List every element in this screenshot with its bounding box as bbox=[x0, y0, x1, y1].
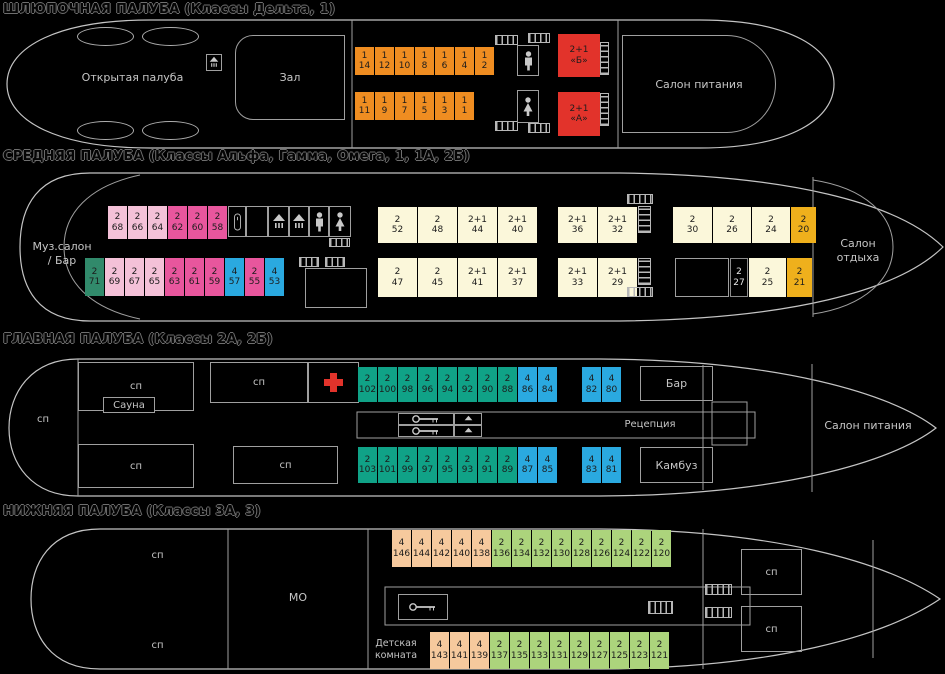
cabin-44[interactable]: 2+144 bbox=[458, 207, 497, 243]
cabin-141[interactable]: 4141 bbox=[450, 632, 469, 669]
key-icon bbox=[398, 413, 454, 425]
cabin-36[interactable]: 2+136 bbox=[558, 207, 597, 243]
cabin-99[interactable]: 299 bbox=[398, 447, 417, 483]
cabin-97[interactable]: 297 bbox=[418, 447, 437, 483]
cabin-capacity: 2 bbox=[135, 212, 141, 222]
cabin-37[interactable]: 2+137 bbox=[498, 258, 537, 297]
utility-cell bbox=[246, 206, 268, 237]
cabin-48[interactable]: 248 bbox=[418, 207, 457, 243]
cabin-64[interactable]: 264 bbox=[148, 206, 167, 239]
cabin-«А»[interactable]: 2+1«А» bbox=[558, 92, 600, 136]
middle-deck-cabin-row-bottom-right: 227225221 bbox=[730, 258, 812, 297]
cabin-number: 71 bbox=[89, 277, 100, 287]
stairs-icon bbox=[705, 607, 732, 618]
cabin-capacity: 2 bbox=[445, 455, 451, 465]
cabin-number: 84 bbox=[542, 385, 553, 395]
cabin-67[interactable]: 267 bbox=[125, 258, 144, 296]
cabin-100[interactable]: 2100 bbox=[378, 367, 397, 402]
cabin-capacity: 2 bbox=[365, 374, 371, 384]
cabin-number: 134 bbox=[513, 549, 530, 559]
cabin-144[interactable]: 4144 bbox=[412, 530, 431, 567]
cabin-53[interactable]: 453 bbox=[265, 258, 284, 296]
sauna-room: Сауна bbox=[103, 397, 155, 413]
cabin-136[interactable]: 2136 bbox=[492, 530, 511, 567]
cabin-140[interactable]: 4140 bbox=[452, 530, 471, 567]
cabin-number: 122 bbox=[633, 549, 650, 559]
cabin-62[interactable]: 262 bbox=[168, 206, 187, 239]
cabin-number: 86 bbox=[522, 385, 533, 395]
wc-men-icon bbox=[309, 206, 329, 237]
cabin-capacity: 2 bbox=[557, 640, 563, 650]
service-room bbox=[305, 268, 367, 308]
cabin-137[interactable]: 2137 bbox=[490, 632, 509, 669]
cabin-139[interactable]: 4139 bbox=[470, 632, 489, 669]
cabin-11[interactable]: 111 bbox=[355, 92, 374, 120]
cabin-capacity: 2 bbox=[617, 640, 623, 650]
cabin-capacity: 2+1 bbox=[508, 267, 527, 277]
cabin-capacity: 2+1 bbox=[468, 215, 487, 225]
cabin-number: 33 bbox=[572, 278, 583, 288]
cabin-128[interactable]: 2128 bbox=[572, 530, 591, 567]
cabin-capacity: 2 bbox=[765, 267, 771, 277]
cabin-52[interactable]: 252 bbox=[378, 207, 417, 243]
dining-label: Салон питания bbox=[655, 78, 742, 91]
cabin-capacity: 2 bbox=[497, 640, 503, 650]
stairs-icon bbox=[627, 287, 653, 297]
cabin-number: 29 bbox=[612, 278, 623, 288]
cabin-capacity: 2+1 bbox=[608, 215, 627, 225]
cabin-87[interactable]: 487 bbox=[518, 447, 537, 483]
cabin-number: 27 bbox=[733, 278, 744, 288]
cabin-capacity: 2 bbox=[172, 267, 178, 277]
suite-a-row: 2+1«А» bbox=[558, 92, 600, 136]
cabin-capacity: 2 bbox=[519, 538, 525, 548]
cabin-capacity: 2 bbox=[152, 267, 158, 277]
cabin-number: 91 bbox=[482, 465, 493, 475]
cabin-capacity: 2 bbox=[637, 640, 643, 650]
cabin-84[interactable]: 484 bbox=[538, 367, 557, 402]
cabin-number: 59 bbox=[209, 277, 220, 287]
cabin-120[interactable]: 2120 bbox=[652, 530, 671, 567]
cabin-capacity: 2 bbox=[192, 267, 198, 277]
cabin-68[interactable]: 268 bbox=[108, 206, 127, 239]
cabin-121[interactable]: 2121 bbox=[650, 632, 669, 669]
cabin-83[interactable]: 483 bbox=[582, 447, 601, 483]
middle-deck-cabin-row-top-mid1: 2522482+1442+140 bbox=[378, 207, 537, 243]
crew-label: сп bbox=[28, 414, 58, 427]
crew-room: сп bbox=[87, 621, 228, 669]
cabin-number: 87 bbox=[522, 465, 533, 475]
cabin-47[interactable]: 247 bbox=[378, 258, 417, 297]
cabin-number: 82 bbox=[586, 385, 597, 395]
cabin-21[interactable]: 221 bbox=[787, 258, 812, 297]
cabin-101[interactable]: 2101 bbox=[378, 447, 397, 483]
cabin-102[interactable]: 2102 bbox=[358, 367, 377, 402]
cabin-12[interactable]: 112 bbox=[375, 47, 394, 75]
cabin-number: 127 bbox=[591, 651, 608, 661]
rest-salon-label: Салон отдыха bbox=[818, 237, 898, 265]
cabin-124[interactable]: 2124 bbox=[612, 530, 631, 567]
cabin-133[interactable]: 2133 bbox=[530, 632, 549, 669]
cabin-138[interactable]: 4138 bbox=[472, 530, 491, 567]
crew-room: сп bbox=[87, 531, 228, 580]
cabin-58[interactable]: 258 bbox=[208, 206, 227, 239]
cabin-95[interactable]: 295 bbox=[438, 447, 457, 483]
cabin-number: 8 bbox=[422, 61, 428, 71]
stairs-icon bbox=[299, 257, 319, 267]
cabin-129[interactable]: 2129 bbox=[570, 632, 589, 669]
cabin-126[interactable]: 2126 bbox=[592, 530, 611, 567]
cabin-80[interactable]: 480 bbox=[602, 367, 621, 402]
cabin-capacity: 4 bbox=[545, 455, 551, 465]
cabin-capacity: 1 bbox=[442, 51, 448, 61]
dining-room: Салон питания bbox=[622, 35, 776, 133]
cabin-capacity: 2 bbox=[599, 538, 605, 548]
cabin-number: 2 bbox=[482, 61, 488, 71]
cabin-number: 37 bbox=[512, 278, 523, 288]
cabin-capacity: 2 bbox=[499, 538, 505, 548]
cabin-capacity: 2 bbox=[425, 455, 431, 465]
cabin-capacity: 2 bbox=[539, 538, 545, 548]
bar-room: Бар bbox=[640, 366, 713, 401]
cabin-capacity: 4 bbox=[589, 455, 595, 465]
cabin-number: 66 bbox=[132, 223, 143, 233]
lifeboat-icon bbox=[142, 121, 199, 140]
reception-label: Рецепция bbox=[612, 419, 688, 432]
cabin-capacity: 2 bbox=[395, 215, 401, 225]
cabin-number: 98 bbox=[402, 385, 413, 395]
engine-room-label: МО bbox=[280, 591, 316, 605]
cabin-number: 99 bbox=[402, 465, 413, 475]
cabin-capacity: 2 bbox=[215, 212, 221, 222]
cabin-capacity: 2 bbox=[132, 267, 138, 277]
cabin-number: 92 bbox=[462, 385, 473, 395]
cabin-85[interactable]: 485 bbox=[538, 447, 557, 483]
cabin-capacity: 2 bbox=[92, 267, 98, 277]
cabin-86[interactable]: 486 bbox=[518, 367, 537, 402]
cabin-7[interactable]: 17 bbox=[395, 92, 414, 120]
cabin-number: 121 bbox=[651, 651, 668, 661]
cabin-capacity: 2 bbox=[485, 374, 491, 384]
cabin-1[interactable]: 11 bbox=[455, 92, 474, 120]
cabin-number: 139 bbox=[471, 651, 488, 661]
cabin-capacity: 2 bbox=[405, 374, 411, 384]
cabin-capacity: 2 bbox=[195, 212, 201, 222]
cabin-number: 130 bbox=[553, 549, 570, 559]
cabin-66[interactable]: 266 bbox=[128, 206, 147, 239]
cabin-capacity: 2 bbox=[505, 374, 511, 384]
cabin-96[interactable]: 296 bbox=[418, 367, 437, 402]
cabin-number: 64 bbox=[152, 223, 163, 233]
cabin-number: 10 bbox=[399, 61, 410, 71]
cabin-capacity: 2 bbox=[175, 212, 181, 222]
cabin-capacity: 2 bbox=[425, 374, 431, 384]
main-deck-cabin-row-bottom2: 483481 bbox=[582, 447, 621, 483]
cabin-55[interactable]: 255 bbox=[245, 258, 264, 296]
cabin-capacity: 4 bbox=[459, 538, 465, 548]
cabin-69[interactable]: 269 bbox=[105, 258, 124, 296]
middle-deck-cabin-row-top-mid2: 2+1362+132 bbox=[558, 207, 637, 243]
cabin-capacity: 2 bbox=[797, 267, 803, 277]
stairs-icon bbox=[528, 33, 550, 43]
medical-room bbox=[308, 362, 359, 403]
cabin-capacity: 2 bbox=[435, 215, 441, 225]
cabin-91[interactable]: 291 bbox=[478, 447, 497, 483]
cabin-71[interactable]: 271 bbox=[85, 258, 104, 296]
cabin-number: 4 bbox=[462, 61, 468, 71]
cabin-number: 52 bbox=[392, 225, 403, 235]
stairs-icon bbox=[325, 257, 345, 267]
cabin-24[interactable]: 224 bbox=[752, 207, 790, 243]
cabin-4[interactable]: 14 bbox=[455, 47, 474, 75]
cabin-27[interactable]: 227 bbox=[730, 258, 748, 297]
cabin-number: 93 bbox=[462, 465, 473, 475]
cabin-capacity: 2 bbox=[365, 455, 371, 465]
cabin-number: 57 bbox=[229, 277, 240, 287]
cabin-capacity: 2 bbox=[597, 640, 603, 650]
cabin-10[interactable]: 110 bbox=[395, 47, 414, 75]
cabin-number: 3 bbox=[442, 106, 448, 116]
cabin-number: 88 bbox=[502, 385, 513, 395]
lifeboat-icon bbox=[77, 27, 134, 46]
cabin-capacity: 1 bbox=[442, 96, 448, 106]
main-deck-title: ГЛАВНАЯ ПАЛУБА (Классы 2А, 2Б) bbox=[3, 332, 273, 347]
cabin-number: 136 bbox=[493, 549, 510, 559]
cabin-capacity: 4 bbox=[399, 538, 405, 548]
cabin-capacity: 4 bbox=[419, 538, 425, 548]
cabin-number: 9 bbox=[382, 106, 388, 116]
cabin-capacity: 2 bbox=[252, 267, 258, 277]
cabin-57[interactable]: 457 bbox=[225, 258, 244, 296]
cabin-number: 94 bbox=[442, 385, 453, 395]
cabin-143[interactable]: 4143 bbox=[430, 632, 449, 669]
cabin-capacity: 2 bbox=[395, 267, 401, 277]
cabin-number: 135 bbox=[511, 651, 528, 661]
cabin-26[interactable]: 226 bbox=[713, 207, 751, 243]
galley-room: Камбуз bbox=[640, 447, 713, 483]
cabin-number: 62 bbox=[172, 223, 183, 233]
cabin-125[interactable]: 2125 bbox=[610, 632, 629, 669]
cabin-capacity: 1 bbox=[362, 96, 368, 106]
cabin-number: 143 bbox=[431, 651, 448, 661]
crew-room: сп bbox=[78, 444, 194, 488]
cabin-93[interactable]: 293 bbox=[458, 447, 477, 483]
cabin-capacity: 1 bbox=[382, 51, 388, 61]
cabin-number: 5 bbox=[422, 106, 428, 116]
cabin-number: 40 bbox=[512, 225, 523, 235]
cabin-5[interactable]: 15 bbox=[415, 92, 434, 120]
cabin-number: 63 bbox=[169, 277, 180, 287]
cabin-capacity: 2+1 bbox=[468, 267, 487, 277]
cabin-capacity: 1 bbox=[422, 96, 428, 106]
cabin-41[interactable]: 2+141 bbox=[458, 258, 497, 297]
middle-deck-cabin-row-bottom-mid2: 2+1332+129 bbox=[558, 258, 637, 297]
ship-deck-plan: ШЛЮПОЧНАЯ ПАЛУБА (Классы Дельта, 1) Откр… bbox=[0, 0, 945, 674]
cabin-8[interactable]: 18 bbox=[415, 47, 434, 75]
cabin-59[interactable]: 259 bbox=[205, 258, 224, 296]
cabin-number: 141 bbox=[451, 651, 468, 661]
cabin-14[interactable]: 114 bbox=[355, 47, 374, 75]
open-deck-label: Открытая палуба bbox=[65, 71, 200, 85]
middle-deck-cabin-row-bottom-left: 271269267265263261259457255453 bbox=[85, 258, 284, 296]
boat-deck-cabin-row-bottom: 1111917151311 bbox=[355, 92, 474, 120]
cabin-number: 120 bbox=[653, 549, 670, 559]
dining-label: Салон питания bbox=[816, 419, 920, 433]
crew-room: сп bbox=[741, 606, 802, 652]
cabin-123[interactable]: 2123 bbox=[630, 632, 649, 669]
cabin-82[interactable]: 482 bbox=[582, 367, 601, 402]
cabin-98[interactable]: 298 bbox=[398, 367, 417, 402]
cabin-45[interactable]: 245 bbox=[418, 258, 457, 297]
cabin-142[interactable]: 4142 bbox=[432, 530, 451, 567]
cabin-90[interactable]: 290 bbox=[478, 367, 497, 402]
cabin-number: 58 bbox=[212, 223, 223, 233]
cabin-131[interactable]: 2131 bbox=[550, 632, 569, 669]
cabin-number: 81 bbox=[606, 465, 617, 475]
cabin-33[interactable]: 2+133 bbox=[558, 258, 597, 297]
cabin-capacity: 1 bbox=[362, 51, 368, 61]
boat-deck-title: ШЛЮПОЧНАЯ ПАЛУБА (Классы Дельта, 1) bbox=[3, 2, 335, 17]
lifeboat-icon bbox=[142, 27, 199, 46]
kids-room-label: Детская комната bbox=[362, 638, 430, 662]
cabin-capacity: 2 bbox=[212, 267, 218, 277]
cabin-capacity: 2 bbox=[736, 267, 742, 277]
middle-deck-cabin-row-top-left: 268266264262260258 bbox=[108, 206, 227, 239]
cabin-«Б»[interactable]: 2+1«Б» bbox=[558, 34, 600, 77]
cabin-number: 25 bbox=[762, 278, 773, 288]
cabin-capacity: 2 bbox=[112, 267, 118, 277]
cabin-number: 65 bbox=[149, 277, 160, 287]
cabin-capacity: 1 bbox=[462, 96, 468, 106]
crew-room: сп bbox=[741, 549, 802, 595]
crew-room: сп bbox=[210, 362, 308, 403]
cabin-capacity: 2 bbox=[385, 374, 391, 384]
shower-icon bbox=[289, 206, 309, 237]
cabin-capacity: 2 bbox=[659, 538, 665, 548]
cabin-number: 132 bbox=[533, 549, 550, 559]
cabin-capacity: 4 bbox=[545, 374, 551, 384]
cabin-6[interactable]: 16 bbox=[435, 47, 454, 75]
cabin-capacity: 1 bbox=[402, 96, 408, 106]
cabin-127[interactable]: 2127 bbox=[590, 632, 609, 669]
cabin-135[interactable]: 2135 bbox=[510, 632, 529, 669]
bath-icon bbox=[228, 206, 246, 237]
cabin-81[interactable]: 481 bbox=[602, 447, 621, 483]
cabin-capacity: 4 bbox=[525, 374, 531, 384]
cabin-20[interactable]: 220 bbox=[791, 207, 816, 243]
cabin-3[interactable]: 13 bbox=[435, 92, 454, 120]
cabin-capacity: 2+1 bbox=[568, 267, 587, 277]
cabin-60[interactable]: 260 bbox=[188, 206, 207, 239]
suite-b-row: 2+1«Б» bbox=[558, 34, 600, 77]
cabin-9[interactable]: 19 bbox=[375, 92, 394, 120]
cabin-92[interactable]: 292 bbox=[458, 367, 477, 402]
cabin-25[interactable]: 225 bbox=[749, 258, 786, 297]
cabin-32[interactable]: 2+132 bbox=[598, 207, 637, 243]
cabin-capacity: 2 bbox=[537, 640, 543, 650]
cabin-30[interactable]: 230 bbox=[673, 207, 712, 243]
cabin-number: 68 bbox=[112, 223, 123, 233]
cabin-number: 24 bbox=[765, 225, 776, 235]
cabin-number: 44 bbox=[472, 225, 483, 235]
cabin-capacity: 2 bbox=[445, 374, 451, 384]
cabin-number: 36 bbox=[572, 225, 583, 235]
cabin-capacity: 4 bbox=[232, 267, 238, 277]
stairs-icon bbox=[528, 123, 550, 133]
stairs-icon bbox=[495, 121, 518, 131]
cabin-number: 142 bbox=[433, 549, 450, 559]
cabin-capacity: 2+1 bbox=[570, 104, 589, 114]
cabin-capacity: 2 bbox=[729, 215, 735, 225]
cabin-capacity: 2 bbox=[619, 538, 625, 548]
cabin-capacity: 4 bbox=[437, 640, 443, 650]
cabin-65[interactable]: 265 bbox=[145, 258, 164, 296]
cabin-number: 69 bbox=[109, 277, 120, 287]
cabin-capacity: 2 bbox=[577, 640, 583, 650]
stairs-icon bbox=[705, 584, 732, 595]
lower-deck-cabin-row-top: 4146414441424140413821362134213221302128… bbox=[392, 530, 671, 567]
cabin-capacity: 2 bbox=[465, 374, 471, 384]
cabin-number: 60 bbox=[192, 223, 203, 233]
cabin-capacity: 1 bbox=[382, 96, 388, 106]
cabin-2[interactable]: 12 bbox=[475, 47, 494, 75]
cabin-capacity: 2 bbox=[517, 640, 523, 650]
cabin-103[interactable]: 2103 bbox=[358, 447, 377, 483]
cabin-capacity: 4 bbox=[589, 374, 595, 384]
cabin-capacity: 1 bbox=[482, 51, 488, 61]
ladder-icon bbox=[600, 93, 609, 126]
cabin-88[interactable]: 288 bbox=[498, 367, 517, 402]
cabin-61[interactable]: 261 bbox=[185, 258, 204, 296]
cabin-134[interactable]: 2134 bbox=[512, 530, 531, 567]
wc-women-icon bbox=[329, 206, 351, 237]
cabin-122[interactable]: 2122 bbox=[632, 530, 651, 567]
crew-room: сп bbox=[233, 446, 338, 484]
cabin-number: 55 bbox=[249, 277, 260, 287]
cabin-number: 96 bbox=[422, 385, 433, 395]
stairs-icon bbox=[638, 258, 651, 285]
shower-icon bbox=[206, 54, 222, 71]
cabin-146[interactable]: 4146 bbox=[392, 530, 411, 567]
cabin-89[interactable]: 289 bbox=[498, 447, 517, 483]
cabin-number: 137 bbox=[491, 651, 508, 661]
key-icon bbox=[398, 594, 448, 620]
cabin-40[interactable]: 2+140 bbox=[498, 207, 537, 243]
cabin-capacity: 1 bbox=[462, 51, 468, 61]
wc-men-icon bbox=[517, 45, 539, 76]
corridor-icon-grid bbox=[398, 413, 484, 437]
cabin-130[interactable]: 2130 bbox=[552, 530, 571, 567]
cabin-94[interactable]: 294 bbox=[438, 367, 457, 402]
cabin-capacity: 2 bbox=[579, 538, 585, 548]
middle-deck-cabin-row-bottom-mid1: 2472452+1412+137 bbox=[378, 258, 537, 297]
cabin-63[interactable]: 263 bbox=[165, 258, 184, 296]
cabin-number: 30 bbox=[687, 225, 698, 235]
cabin-capacity: 2 bbox=[639, 538, 645, 548]
cabin-number: 102 bbox=[359, 385, 376, 395]
cabin-number: 12 bbox=[379, 61, 390, 71]
lower-deck-title: НИЖНЯЯ ПАЛУБА (Классы 3А, 3) bbox=[3, 504, 261, 519]
cabin-number: 128 bbox=[573, 549, 590, 559]
cabin-number: 133 bbox=[531, 651, 548, 661]
medical-cross-icon bbox=[323, 372, 344, 393]
cabin-capacity: 4 bbox=[477, 640, 483, 650]
cabin-number: 90 bbox=[482, 385, 493, 395]
cabin-number: 21 bbox=[794, 278, 805, 288]
shower-icon bbox=[268, 206, 289, 237]
cabin-132[interactable]: 2132 bbox=[532, 530, 551, 567]
hall-room: Зал bbox=[235, 35, 345, 120]
